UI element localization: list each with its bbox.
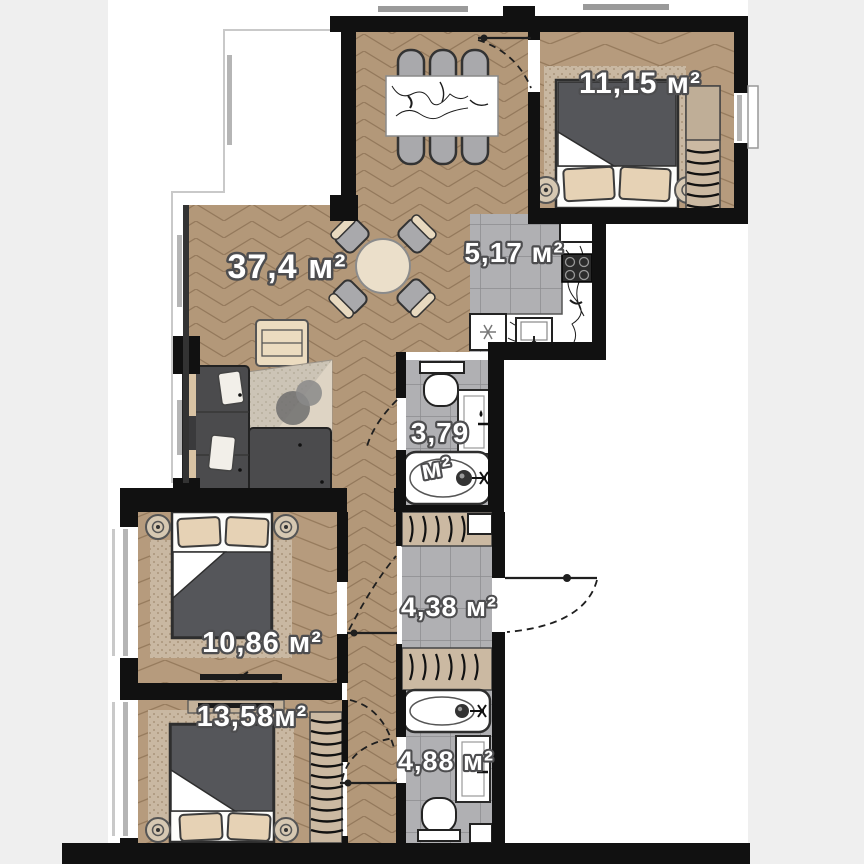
window-sill bbox=[748, 86, 758, 148]
label-bathroom-small-area: 3,79 bbox=[411, 417, 470, 448]
round-table bbox=[356, 239, 410, 293]
nightstand bbox=[146, 818, 170, 842]
label-hallway-area: 4,38 м² bbox=[401, 592, 497, 622]
side-table bbox=[296, 380, 322, 406]
floor-plan: 37,4 м² 11,15 м² 5,17 м² 3,79 м² 4,38 м²… bbox=[0, 0, 864, 864]
label-bedroom-top-area: 11,15 м² bbox=[579, 67, 701, 100]
pillow bbox=[227, 813, 270, 841]
label-kitchen-area: 5,17 м² bbox=[464, 237, 563, 268]
label-bathroom-small-units: м² bbox=[419, 451, 455, 486]
nightstand bbox=[146, 515, 170, 539]
corridor-floor bbox=[347, 488, 397, 845]
window-sill-top-bedroom bbox=[583, 4, 669, 10]
label-living-area: 37,4 м² bbox=[227, 248, 346, 286]
shaft-niche bbox=[470, 824, 492, 843]
window-glazing bbox=[177, 235, 182, 307]
label-bathroom-big-area: 4,88 м² bbox=[398, 746, 494, 776]
window-glazing bbox=[123, 529, 128, 656]
nightstand bbox=[274, 515, 298, 539]
dining-table-marble bbox=[386, 76, 498, 136]
window-sill-top-living bbox=[378, 6, 468, 12]
bathtub bbox=[404, 690, 490, 732]
label-bedroom-left-area: 10,86 м² bbox=[202, 627, 322, 659]
wardrobe-top-bedroom bbox=[686, 86, 720, 210]
sofa-pillow bbox=[218, 371, 244, 406]
pillow bbox=[177, 517, 220, 547]
pillow bbox=[619, 167, 671, 202]
bedroom-top-window bbox=[734, 86, 758, 148]
sofa-pillow bbox=[208, 435, 235, 471]
dining-set bbox=[386, 50, 498, 164]
sink bbox=[516, 318, 552, 346]
label-bedroom-bottom-area: 13,58м² bbox=[197, 701, 308, 733]
nightstand bbox=[274, 818, 298, 842]
pillow bbox=[563, 167, 615, 202]
pillow bbox=[225, 517, 268, 547]
window-glazing bbox=[177, 400, 182, 455]
pillow bbox=[179, 813, 222, 841]
window-glazing bbox=[123, 702, 128, 836]
toilet bbox=[418, 798, 460, 841]
shaft-niche bbox=[468, 514, 492, 534]
wardrobe-bedroom-bottom bbox=[310, 712, 343, 843]
stove bbox=[562, 254, 592, 282]
window-glazing bbox=[737, 95, 742, 141]
hallway-wardrobe-bottom bbox=[402, 648, 492, 690]
floor-plan-page: 37,4 м² 11,15 м² 5,17 м² 3,79 м² 4,38 м²… bbox=[0, 0, 864, 864]
hallway-wardrobe-top bbox=[402, 512, 492, 546]
